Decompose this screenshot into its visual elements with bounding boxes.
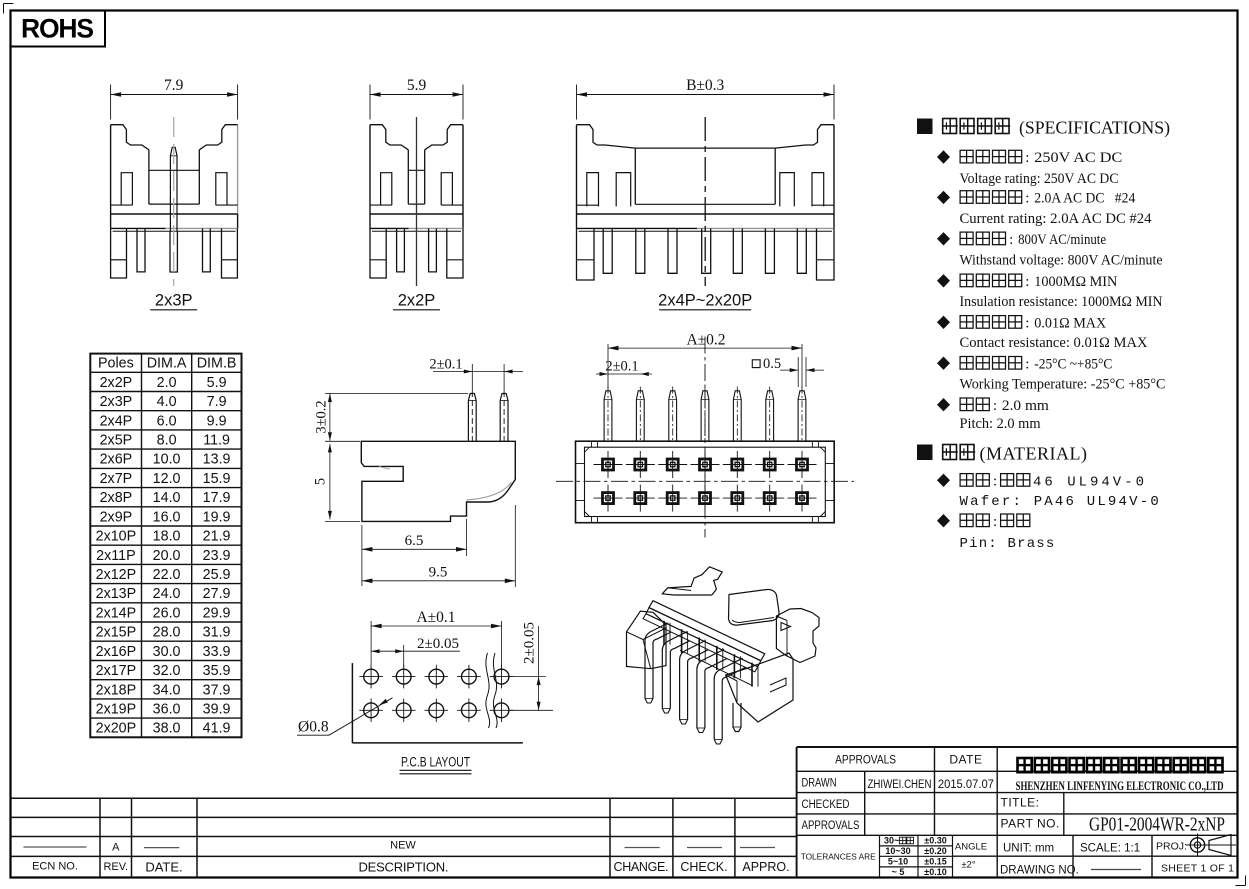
svg-text::: :	[1025, 191, 1029, 207]
svg-text:ROHS: ROHS	[21, 14, 94, 44]
svg-text::: :	[1025, 316, 1029, 332]
svg-text:NEW: NEW	[390, 839, 416, 851]
svg-text:2015.07.07: 2015.07.07	[938, 779, 994, 791]
svg-text:Voltage rating: 250V AC DC: Voltage rating: 250V AC DC	[960, 171, 1119, 187]
svg-text:DIM.A: DIM.A	[147, 356, 187, 372]
svg-text:23.9: 23.9	[203, 548, 231, 564]
svg-text:26.0: 26.0	[153, 605, 181, 621]
svg-text:SHEET 1 OF 1: SHEET 1 OF 1	[1161, 863, 1234, 875]
svg-text:CHECK.: CHECK.	[680, 860, 727, 874]
svg-text:22.0: 22.0	[153, 567, 181, 583]
svg-text:Ø0.8: Ø0.8	[298, 719, 329, 736]
svg-text:DRAWING NO.: DRAWING NO.	[1000, 865, 1079, 877]
svg-text:Working Temperature: -25°C +8: Working Temperature: -25°C +85°C	[960, 377, 1166, 393]
svg-text:±2°: ±2°	[961, 860, 975, 871]
svg-text:11.9: 11.9	[203, 433, 230, 449]
svg-text:ANGLE: ANGLE	[955, 842, 987, 853]
svg-text:34.0: 34.0	[153, 682, 181, 698]
svg-text:2x17P: 2x17P	[96, 663, 137, 679]
svg-text:31.9: 31.9	[203, 625, 231, 641]
svg-text:DATE: DATE	[949, 753, 982, 767]
svg-text:2x3P: 2x3P	[155, 292, 193, 310]
svg-text:TOLERANCES ARE: TOLERANCES ARE	[801, 852, 876, 862]
svg-text:5.9: 5.9	[407, 77, 427, 94]
svg-text:SHENZHEN LINFENYING ELECTRONIC: SHENZHEN LINFENYING ELECTRONIC CO.,LTD	[1016, 779, 1224, 793]
svg-text:10.0: 10.0	[153, 452, 181, 468]
svg-text:-25°C ~+85°C: -25°C ~+85°C	[1034, 356, 1112, 372]
svg-text:PART NO.: PART NO.	[1001, 817, 1060, 831]
svg-text:16.0: 16.0	[153, 509, 181, 525]
svg-text:38.0: 38.0	[153, 721, 181, 737]
svg-text:2x9P: 2x9P	[100, 509, 133, 525]
svg-text:2x12P: 2x12P	[96, 567, 137, 583]
svg-text:B±0.3: B±0.3	[686, 77, 724, 94]
svg-text:37.9: 37.9	[203, 682, 231, 698]
svg-text:14.0: 14.0	[153, 490, 181, 506]
svg-text:2x2P: 2x2P	[398, 292, 436, 310]
svg-text:20.0: 20.0	[153, 548, 181, 564]
svg-text:DESCRIPTION.: DESCRIPTION.	[359, 860, 449, 875]
svg-text:33.9: 33.9	[203, 644, 231, 660]
svg-text:0.5: 0.5	[763, 356, 781, 372]
svg-text:39.9: 39.9	[203, 702, 231, 718]
svg-text:5~10: 5~10	[888, 857, 908, 867]
svg-text:7.9: 7.9	[164, 77, 184, 94]
svg-text:CHANGE.: CHANGE.	[614, 860, 669, 874]
svg-text:2x4P~2x20P: 2x4P~2x20P	[658, 292, 752, 310]
svg-text:2.0A AC DC #24: 2.0A AC DC #24	[1034, 191, 1136, 207]
svg-text:±0.20: ±0.20	[924, 846, 946, 856]
svg-text::: :	[1025, 356, 1029, 372]
svg-text:1000MΩ MIN: 1000MΩ MIN	[1034, 274, 1118, 290]
svg-text:A±0.1: A±0.1	[416, 609, 455, 626]
svg-text:2.0: 2.0	[157, 375, 177, 391]
svg-text::: :	[1009, 232, 1013, 248]
svg-text:Pin: Brass: Pin: Brass	[960, 536, 1056, 552]
svg-text:~ 5: ~ 5	[892, 867, 905, 877]
svg-text:±0.10: ±0.10	[924, 867, 946, 877]
svg-text:800V AC/minute: 800V AC/minute	[1018, 232, 1106, 248]
svg-text::: :	[1025, 274, 1029, 290]
svg-text::: :	[993, 398, 997, 414]
svg-text:2.0 mm: 2.0 mm	[1002, 398, 1050, 414]
svg-text:30~: 30~	[884, 836, 899, 846]
svg-text:Insulation resistance: 1000MΩ: Insulation resistance: 1000MΩ MIN	[960, 294, 1163, 310]
svg-text::: :	[1025, 150, 1029, 166]
svg-text:27.9: 27.9	[203, 586, 231, 602]
svg-text:2x8P: 2x8P	[100, 490, 133, 506]
svg-text:DIM.B: DIM.B	[197, 356, 237, 372]
svg-text:2x5P: 2x5P	[100, 433, 133, 449]
svg-text:3±0.2: 3±0.2	[314, 400, 330, 433]
svg-text:41.9: 41.9	[203, 721, 231, 737]
svg-text:2±0.05: 2±0.05	[417, 636, 459, 652]
svg-text:A±0.2: A±0.2	[686, 332, 725, 349]
svg-text:36.0: 36.0	[153, 702, 181, 718]
svg-text::: :	[993, 474, 997, 490]
svg-text:2x13P: 2x13P	[96, 586, 137, 602]
svg-text:2x19P: 2x19P	[96, 702, 137, 718]
svg-text:5: 5	[313, 478, 329, 485]
svg-text:8.0: 8.0	[157, 433, 177, 449]
svg-text:6.0: 6.0	[157, 413, 177, 429]
svg-text:(MATERIAL): (MATERIAL)	[980, 444, 1088, 465]
svg-text:46 UL94V-0: 46 UL94V-0	[1033, 475, 1147, 491]
svg-text:APPRO.: APPRO.	[742, 860, 789, 874]
svg-text:2x20P: 2x20P	[96, 721, 137, 737]
svg-text:TITLE:: TITLE:	[1001, 796, 1040, 810]
svg-text::: :	[993, 514, 997, 530]
svg-text:6.5: 6.5	[405, 533, 424, 549]
svg-text:GP01-2004WR-2xNP: GP01-2004WR-2xNP	[1089, 815, 1225, 836]
svg-text:35.9: 35.9	[203, 663, 231, 679]
svg-text:±0.30: ±0.30	[924, 836, 946, 846]
svg-text:13.9: 13.9	[203, 452, 231, 468]
svg-text:A: A	[112, 842, 120, 854]
svg-text:2±0.1: 2±0.1	[429, 357, 462, 373]
svg-text:12.0: 12.0	[153, 471, 181, 487]
svg-text:ZHIWEI.CHEN: ZHIWEI.CHEN	[868, 779, 932, 791]
svg-text:REV.: REV.	[103, 861, 128, 873]
svg-text:0.01Ω MAX: 0.01Ω MAX	[1034, 316, 1107, 332]
svg-text:Wafer: PA46 UL94V-0: Wafer: PA46 UL94V-0	[960, 494, 1161, 510]
svg-text:2x3P: 2x3P	[100, 394, 133, 410]
svg-text:15.9: 15.9	[203, 471, 231, 487]
svg-text:DATE.: DATE.	[145, 860, 182, 875]
svg-text:2x14P: 2x14P	[96, 605, 137, 621]
svg-text:9.9: 9.9	[207, 413, 227, 429]
svg-text:Current rating: 2.0A AC DC #: Current rating: 2.0A AC DC #24	[960, 211, 1153, 227]
svg-text:7.9: 7.9	[207, 394, 227, 410]
svg-text:32.0: 32.0	[153, 663, 181, 679]
svg-text:(SPECIFICATIONS): (SPECIFICATIONS)	[1019, 118, 1170, 138]
svg-text:30.0: 30.0	[153, 644, 181, 660]
svg-text:Withstand voltage: 800V AC/min: Withstand voltage: 800V AC/minute	[960, 252, 1163, 268]
svg-text:29.9: 29.9	[203, 605, 231, 621]
svg-text:Poles: Poles	[98, 356, 134, 372]
svg-text:18.0: 18.0	[153, 529, 181, 545]
svg-text:10~30: 10~30	[885, 846, 910, 856]
svg-text:25.9: 25.9	[203, 567, 231, 583]
svg-text:SCALE: 1:1: SCALE: 1:1	[1080, 843, 1140, 855]
svg-text:PROJ:: PROJ:	[1156, 841, 1187, 853]
svg-text:2x11P: 2x11P	[96, 548, 135, 564]
svg-text:2x15P: 2x15P	[96, 625, 137, 641]
svg-text:5.9: 5.9	[207, 375, 227, 391]
svg-text:2x10P: 2x10P	[96, 529, 137, 545]
svg-text:24.0: 24.0	[153, 586, 181, 602]
svg-text:APPROVALS: APPROVALS	[835, 755, 896, 767]
svg-text:2x18P: 2x18P	[96, 682, 137, 698]
svg-text:ECN NO.: ECN NO.	[32, 861, 78, 873]
svg-text:2±0.1: 2±0.1	[605, 359, 638, 375]
svg-text:P.C.B LAYOUT: P.C.B LAYOUT	[401, 755, 470, 770]
svg-text:UNIT: mm: UNIT: mm	[1003, 843, 1054, 855]
svg-text:Pitch: 2.0 mm: Pitch: 2.0 mm	[960, 416, 1042, 432]
svg-text:CHECKED: CHECKED	[802, 799, 850, 811]
svg-text:±0.15: ±0.15	[924, 857, 946, 867]
svg-text:2x4P: 2x4P	[100, 413, 133, 429]
svg-text:4.0: 4.0	[157, 394, 177, 410]
svg-text:APPROVALS: APPROVALS	[802, 820, 860, 832]
svg-text:250V AC DC: 250V AC DC	[1034, 150, 1122, 166]
svg-text:2x16P: 2x16P	[96, 644, 137, 660]
svg-text:19.9: 19.9	[203, 509, 231, 525]
svg-text:28.0: 28.0	[153, 625, 181, 641]
svg-text:17.9: 17.9	[203, 490, 231, 506]
svg-text:2±0.05: 2±0.05	[522, 622, 538, 664]
svg-text:2x6P: 2x6P	[100, 452, 133, 468]
svg-text:9.5: 9.5	[429, 564, 448, 580]
svg-text:2x7P: 2x7P	[100, 471, 133, 487]
svg-text:Contact resistance: 0.01Ω MA: Contact resistance: 0.01Ω MAX	[960, 335, 1149, 351]
svg-text:2x2P: 2x2P	[100, 375, 133, 391]
svg-text:DRAWN: DRAWN	[802, 778, 837, 790]
svg-text:21.9: 21.9	[203, 529, 231, 545]
